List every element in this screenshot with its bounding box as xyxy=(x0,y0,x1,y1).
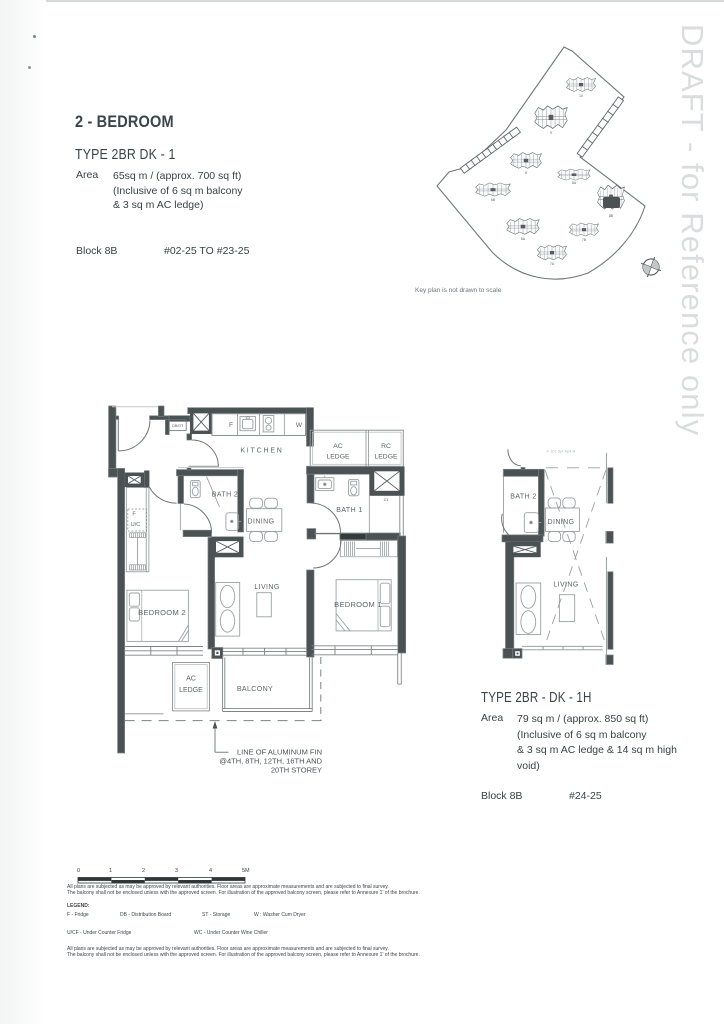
svg-text:9: 9 xyxy=(550,131,552,135)
svg-text:2: 2 xyxy=(142,868,145,874)
svg-text:DINING: DINING xyxy=(548,519,575,526)
svg-text:DB/DT: DB/DT xyxy=(172,424,184,428)
svg-text:U/C: U/C xyxy=(131,522,141,528)
svg-text:8B: 8B xyxy=(609,214,614,218)
svg-text:LEDGE: LEDGE xyxy=(326,454,350,461)
svg-text:Z1: Z1 xyxy=(384,497,389,502)
svg-text:BEDROOM 2: BEDROOM 2 xyxy=(138,608,186,617)
svg-text:AC: AC xyxy=(333,443,343,450)
svg-text:W: W xyxy=(296,422,303,429)
svg-text:@4TH, 8TH, 12TH, 16TH AND: @4TH, 8TH, 12TH, 16TH AND xyxy=(219,757,322,766)
svg-text:RC: RC xyxy=(381,443,391,450)
svg-text:BALCONY: BALCONY xyxy=(237,686,273,693)
svg-text:BEDROOM 1: BEDROOM 1 xyxy=(334,600,382,609)
svg-text:LEDGE: LEDGE xyxy=(374,454,398,461)
svg-text:1: 1 xyxy=(109,868,112,874)
svg-text:LIVING: LIVING xyxy=(553,582,578,589)
svg-text:F: F xyxy=(132,512,136,518)
svg-text:10: 10 xyxy=(579,94,583,98)
svg-text:4: 4 xyxy=(209,868,212,874)
svg-text:DINING: DINING xyxy=(248,519,275,526)
svg-text:5A: 5A xyxy=(572,181,577,185)
svg-text:F 101 9pt Ap4 R: F 101 9pt Ap4 R xyxy=(547,449,576,454)
svg-text:BATH 2: BATH 2 xyxy=(212,492,238,499)
svg-text:5M: 5M xyxy=(242,868,250,874)
svg-text:7A: 7A xyxy=(550,262,555,266)
svg-text:AC: AC xyxy=(186,676,196,683)
svg-text:LEDGE: LEDGE xyxy=(179,687,203,694)
svg-text:BATH 1: BATH 1 xyxy=(336,507,362,514)
svg-text:7B: 7B xyxy=(582,238,587,242)
svg-text:LINE OF ALUMINUM FIN: LINE OF ALUMINUM FIN xyxy=(237,748,322,757)
svg-text:0: 0 xyxy=(77,868,80,874)
svg-text:3: 3 xyxy=(175,868,178,874)
svg-text:F: F xyxy=(229,422,233,429)
svg-text:KITCHEN: KITCHEN xyxy=(240,448,283,455)
svg-text:LIVING: LIVING xyxy=(254,584,279,591)
svg-text:20TH STOREY: 20TH STOREY xyxy=(271,766,322,775)
svg-text:6A: 6A xyxy=(521,237,526,241)
svg-text:BATH 2: BATH 2 xyxy=(510,494,536,501)
svg-text:8: 8 xyxy=(525,171,527,175)
svg-text:6B: 6B xyxy=(491,198,496,202)
